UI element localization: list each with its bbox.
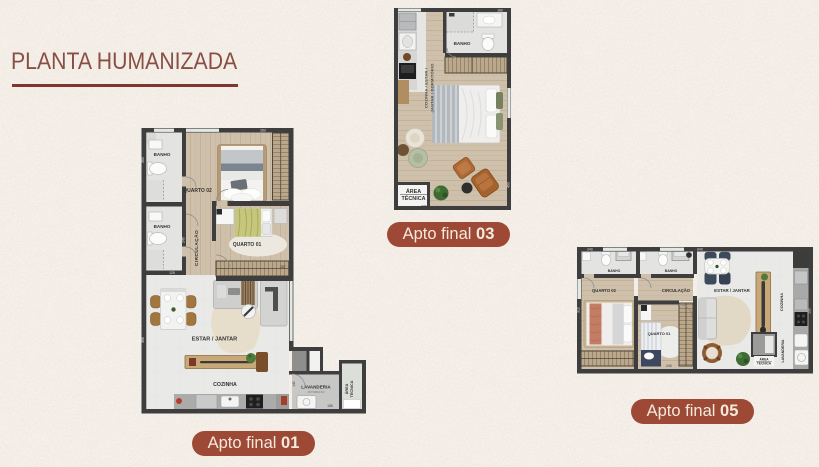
svg-text:160: 160: [497, 8, 503, 12]
svg-text:312: 312: [576, 307, 580, 313]
svg-text:110: 110: [401, 8, 407, 12]
svg-text:496: 496: [141, 337, 145, 343]
svg-text:TÉCNICA: TÉCNICA: [349, 380, 354, 397]
svg-text:ESTAR / JANTAR: ESTAR / JANTAR: [192, 337, 237, 343]
svg-text:QUARTO 01: QUARTO 01: [233, 242, 262, 248]
svg-text:640: 640: [697, 247, 703, 251]
svg-text:ESTAR / JANTAR: ESTAR / JANTAR: [714, 288, 751, 293]
svg-text:453: 453: [506, 182, 510, 188]
svg-text:245: 245: [181, 237, 185, 243]
svg-text:LAVANDERIA: LAVANDERIA: [301, 385, 331, 390]
svg-text:263: 263: [141, 157, 145, 163]
svg-text:QUARTO 01: QUARTO 01: [648, 331, 672, 336]
svg-text:CIRCULAÇÃO: CIRCULAÇÃO: [193, 230, 200, 266]
svg-text:130: 130: [808, 308, 812, 314]
svg-text:BANHO: BANHO: [665, 269, 678, 273]
svg-text:302: 302: [187, 128, 193, 132]
svg-text:COZINHA: COZINHA: [779, 293, 784, 311]
svg-text:BANHO: BANHO: [454, 41, 471, 46]
svg-text:125: 125: [169, 271, 175, 275]
svg-text:JANTAR / DORMITÓRIO: JANTAR / DORMITÓRIO: [430, 63, 435, 112]
svg-text:COZINHA / ESTAR /: COZINHA / ESTAR /: [424, 67, 429, 108]
svg-text:ÁREA: ÁREA: [344, 383, 349, 394]
svg-text:155: 155: [327, 404, 333, 408]
svg-text:240: 240: [666, 364, 672, 368]
svg-text:TÉCNICA: TÉCNICA: [402, 194, 426, 202]
svg-text:BANHO: BANHO: [154, 152, 171, 157]
svg-text:236: 236: [421, 205, 427, 209]
svg-text:240: 240: [587, 247, 593, 251]
svg-text:180: 180: [499, 55, 505, 59]
svg-text:QUARTO 02: QUARTO 02: [592, 288, 617, 293]
svg-text:QUARTO 02: QUARTO 02: [183, 188, 212, 194]
svg-text:ÁREA: ÁREA: [406, 188, 421, 195]
svg-text:BANHO: BANHO: [154, 224, 171, 229]
svg-text:CIRCULAÇÃO: CIRCULAÇÃO: [662, 288, 691, 293]
svg-text:LAVANDERIA: LAVANDERIA: [781, 339, 785, 362]
svg-text:COZINHA: COZINHA: [213, 382, 237, 388]
svg-text:TÉCNICA: TÉCNICA: [757, 361, 772, 366]
svg-text:BANHO: BANHO: [608, 269, 621, 273]
svg-text:263: 263: [260, 128, 266, 132]
svg-text:287: 287: [280, 265, 286, 269]
svg-text:140: 140: [292, 381, 296, 387]
